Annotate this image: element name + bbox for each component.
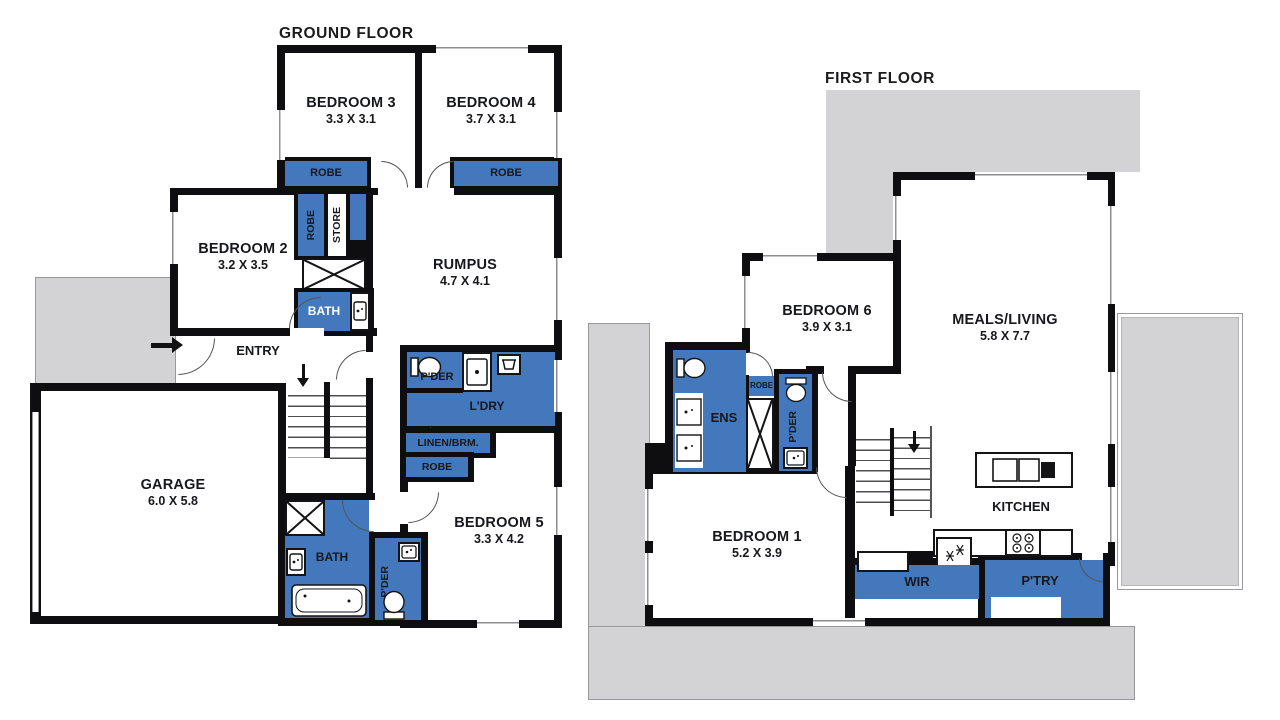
toilet-icon bbox=[381, 590, 407, 620]
garage-label: GARAGE 6.0 X 5.8 bbox=[112, 476, 234, 510]
garage-door bbox=[32, 412, 39, 612]
stairs-down-arrow-icon bbox=[913, 431, 916, 445]
stairs-down-arrow-head bbox=[297, 378, 309, 387]
bedroom1-door-arc bbox=[816, 467, 847, 498]
room-dims: 3.3 X 4.2 bbox=[474, 532, 524, 546]
entry-label: ENTRY bbox=[230, 344, 286, 359]
wall bbox=[368, 532, 375, 626]
window bbox=[893, 196, 901, 240]
robe-bed5: ROBE bbox=[406, 457, 468, 477]
stairs-flight bbox=[856, 430, 890, 510]
shower-upper bbox=[302, 258, 366, 291]
room-dims: 3.9 X 3.1 bbox=[802, 320, 852, 334]
wall bbox=[30, 383, 286, 391]
bedroom1-label: BEDROOM 1 5.2 X 3.9 bbox=[696, 528, 818, 562]
wall bbox=[893, 253, 901, 374]
bathtub-icon bbox=[291, 584, 367, 617]
stairs-flight bbox=[894, 428, 930, 512]
room-name: BEDROOM 3 bbox=[306, 95, 396, 112]
roof-area-bottom bbox=[588, 626, 1135, 700]
toilet-icon bbox=[676, 355, 706, 381]
wall bbox=[645, 618, 1110, 626]
room-name: MEALS/LIVING bbox=[952, 312, 1058, 329]
stairs-down-arrow-head bbox=[908, 444, 920, 453]
pder-upstairs-label: P'DER bbox=[787, 411, 799, 443]
robe-bed3: ROBE bbox=[285, 161, 367, 186]
wall bbox=[415, 53, 422, 188]
entry-arrow-icon bbox=[151, 343, 173, 348]
entry-arrow-head bbox=[172, 337, 183, 353]
room-dims: 4.7 X 4.1 bbox=[440, 274, 490, 288]
wall bbox=[420, 532, 428, 626]
window bbox=[554, 360, 562, 412]
bath-lower-label: BATH bbox=[303, 551, 361, 565]
window bbox=[742, 276, 750, 328]
window bbox=[1108, 206, 1115, 304]
wall bbox=[665, 342, 750, 350]
wall bbox=[366, 378, 373, 500]
bath-upper-vanity bbox=[350, 292, 370, 331]
wall bbox=[278, 493, 375, 500]
stairs-rail bbox=[930, 426, 932, 518]
bedroom3-door-arc bbox=[381, 161, 408, 188]
rumpus-label: RUMPUS 4.7 X 4.1 bbox=[404, 256, 526, 290]
store-cupboard bbox=[350, 194, 366, 240]
stairs-door-arc bbox=[336, 350, 366, 380]
door-opening bbox=[378, 188, 454, 195]
ensuite-vanity bbox=[675, 393, 703, 468]
shower-lower bbox=[285, 500, 325, 536]
bedroom4-door-arc bbox=[427, 161, 454, 188]
wall bbox=[1103, 553, 1110, 626]
washing-machine-icon bbox=[462, 352, 492, 392]
laundry-label: L'DRY bbox=[450, 399, 524, 414]
stairs-flight bbox=[288, 386, 324, 458]
room-dims: 6.0 X 5.8 bbox=[148, 494, 198, 508]
wall bbox=[30, 616, 286, 624]
island-sink-icon bbox=[992, 458, 1056, 482]
bedroom6-door-arc bbox=[822, 372, 852, 402]
pantry-notch bbox=[991, 597, 1061, 618]
window bbox=[436, 45, 528, 53]
room-name: BEDROOM 2 bbox=[198, 241, 288, 258]
window bbox=[645, 553, 653, 605]
floorplan-canvas: GROUND FLOOR ROBE ROBE ROBE STORE BATH P… bbox=[0, 0, 1280, 720]
pder-upstairs: P'DER bbox=[786, 404, 800, 450]
ground-floor-title: GROUND FLOOR bbox=[279, 25, 459, 43]
store: STORE bbox=[328, 194, 346, 256]
first-floor-title: FIRST FLOOR bbox=[825, 70, 985, 88]
window bbox=[554, 258, 562, 320]
meals-living-label: MEALS/LIVING 5.8 X 7.7 bbox=[944, 311, 1066, 345]
shower-ensuite bbox=[746, 398, 774, 470]
toilet-icon bbox=[784, 377, 808, 403]
shower-x-icon bbox=[304, 260, 364, 289]
roof-area-left bbox=[588, 323, 650, 627]
stairs-flight bbox=[330, 386, 366, 460]
wall bbox=[368, 493, 375, 500]
door-opening bbox=[290, 328, 324, 336]
window bbox=[975, 172, 1087, 180]
wall bbox=[407, 388, 463, 393]
store-label: STORE bbox=[331, 207, 343, 243]
window bbox=[813, 618, 865, 626]
room-name: BEDROOM 4 bbox=[446, 95, 536, 112]
window bbox=[1108, 487, 1115, 542]
room-dims: 3.2 X 3.5 bbox=[218, 258, 268, 272]
bedroom5-label: BEDROOM 5 3.3 X 4.2 bbox=[438, 514, 560, 548]
roof-area-top bbox=[826, 90, 1140, 172]
balcony-deck bbox=[1117, 313, 1243, 590]
window bbox=[277, 110, 285, 160]
room-dims: 3.7 X 3.1 bbox=[466, 112, 516, 126]
room-name: RUMPUS bbox=[433, 257, 497, 274]
bedroom4-label: BEDROOM 4 3.7 X 3.1 bbox=[430, 94, 552, 128]
room-name: BEDROOM 1 bbox=[712, 529, 802, 546]
sink-icon bbox=[352, 294, 368, 329]
bedroom5-door-arc bbox=[408, 492, 439, 523]
double-sink-icon bbox=[675, 393, 703, 468]
window bbox=[1108, 372, 1115, 444]
bedroom6-label: BEDROOM 6 3.9 X 3.1 bbox=[766, 302, 888, 336]
laundry-trough-icon bbox=[497, 354, 521, 375]
room-dims: 5.8 X 7.7 bbox=[980, 329, 1030, 343]
robe-hall-label: ROBE bbox=[305, 210, 317, 240]
entry-door-arc bbox=[178, 338, 215, 375]
bedroom2-label: BEDROOM 2 3.2 X 3.5 bbox=[182, 240, 304, 274]
kitchen-label: KITCHEN bbox=[985, 500, 1057, 515]
wall bbox=[978, 558, 985, 626]
bedroom3-label: BEDROOM 3 3.3 X 3.1 bbox=[290, 94, 412, 128]
window bbox=[477, 620, 519, 628]
shower-x-icon bbox=[748, 400, 772, 468]
kitchen-island bbox=[975, 452, 1073, 488]
stairs-down-arrow-icon bbox=[302, 364, 305, 379]
room-name: GARAGE bbox=[141, 477, 206, 494]
room-name: BEDROOM 6 bbox=[782, 303, 872, 320]
wall bbox=[853, 366, 901, 374]
porch-area bbox=[35, 277, 176, 388]
hall-cupboard bbox=[857, 551, 909, 572]
sink-icon bbox=[398, 542, 420, 562]
roof-area-arm bbox=[826, 172, 897, 258]
robe6: ROBE bbox=[749, 376, 774, 396]
window bbox=[763, 253, 817, 261]
window bbox=[170, 212, 178, 264]
robe6-door-arc bbox=[748, 352, 773, 377]
sink-icon bbox=[783, 447, 808, 469]
pantry-label: P'TRY bbox=[1009, 574, 1071, 589]
shower-x-icon bbox=[287, 502, 323, 534]
window bbox=[554, 112, 562, 158]
ensuite-label: ENS bbox=[703, 411, 745, 426]
room-dims: 5.2 X 3.9 bbox=[732, 546, 782, 560]
wall bbox=[812, 372, 818, 472]
window bbox=[645, 489, 653, 541]
room-name: BEDROOM 5 bbox=[454, 515, 544, 532]
robe-bed4: ROBE bbox=[454, 161, 558, 186]
linen: LINEN/BRM. bbox=[406, 433, 490, 453]
cooktop-icon bbox=[1005, 529, 1041, 556]
pder-laundry-label: P'DER bbox=[408, 371, 466, 384]
room-dims: 3.3 X 3.1 bbox=[326, 112, 376, 126]
wall bbox=[400, 482, 408, 492]
